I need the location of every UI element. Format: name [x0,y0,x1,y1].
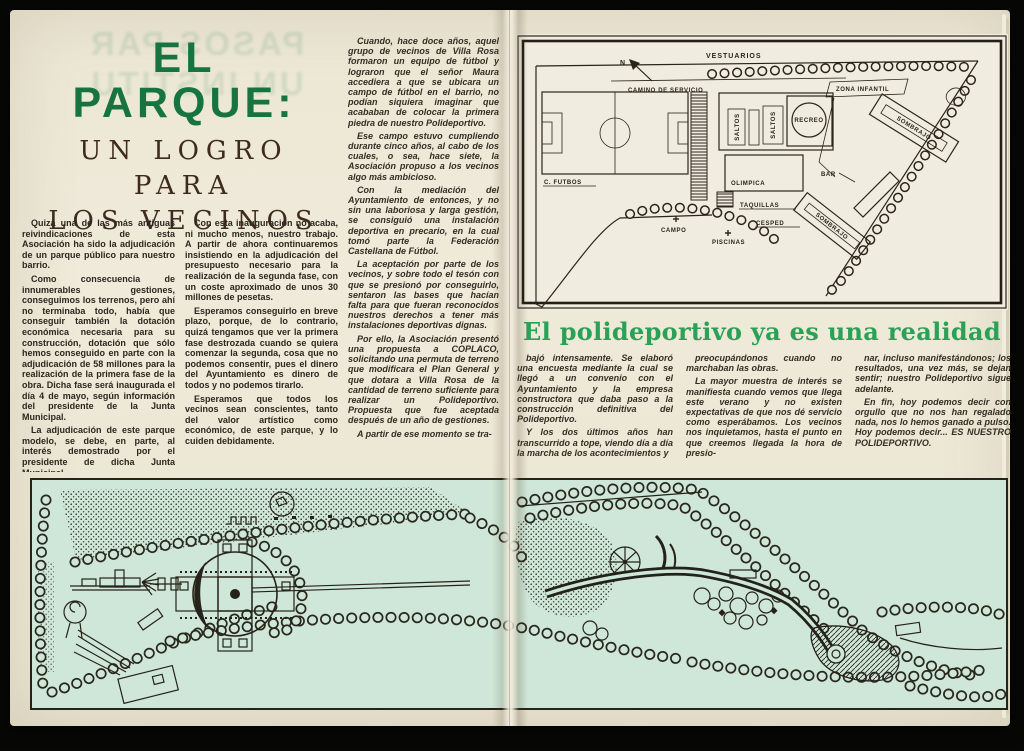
label-taquillas: TAQUILLAS [740,203,779,209]
label-campo: CAMPO [661,228,686,234]
title-green: EL PARQUE: [28,36,340,126]
pergola-comb [226,517,256,524]
paragraph: En fin, hoy podemos decir con orgullo qu… [855,397,1011,448]
paragraph: Quizá una de las más antiguas reivindica… [22,218,175,271]
left-article-column-1: Quizá una de las más antiguas reivindica… [22,218,175,472]
paragraph: nar, incluso manifestándonos; los result… [855,353,1011,394]
left-article-column-3: Cuando, hace doce años, aquel grupo de v… [348,36,499,474]
paragraph: Esperamos que todos los vecinos sean con… [185,394,338,447]
paragraph: Como consecuencia de innumerables gestio… [22,274,175,422]
paragraph: Cuando, hace doce años, aquel grupo de v… [348,36,499,128]
label-bar: BAR [821,172,836,178]
article-title-block: EL PARQUE: UN LOGRO PARA LOS VECINOS [28,36,340,239]
paragraph: bajó intensamente. Se elaboró una encues… [517,353,673,424]
right-article-column-1: bajó intensamente. Se elaboró una encues… [517,353,673,480]
label-recreo: RECREO [794,118,823,124]
left-article-column-2: Con esta inauguración no acaba, ni mucho… [185,218,338,472]
paragraph: La aceptación por parte de los vecinos, … [348,259,499,330]
polideportivo-headline: El polideportivo ya es una realidad [514,314,1010,350]
paragraph: Esperamos conseguirlo en breve plazo, po… [185,306,338,391]
label-olimpica: OLIMPICA [731,181,765,187]
right-article-column-3: nar, incluso manifestándonos; los result… [855,353,1011,480]
taquillas-block [717,192,733,207]
north-label: N [620,60,626,67]
label-zona-infantil: ZONA INFANTIL [836,87,889,93]
paragraph: Por ello, la Asociación presentó una pro… [348,334,499,426]
paragraph: preocupándonos cuando no marchaban las o… [686,353,842,373]
label-piscinas: PISCINAS [712,240,745,246]
stands-hatched [691,92,707,200]
right-article-column-2: preocupándonos cuando no marchaban las o… [686,353,842,480]
paragraph: La adjudicación de este parque modelo, s… [22,425,175,472]
paragraph: Con la mediación del Ayuntamiento de ent… [348,185,499,256]
park-plan-drawing [30,478,1008,710]
paragraph: Y los dos últimos años han transcurrido … [517,427,673,458]
label-saltos-b: SALTOS [771,111,777,138]
paragraph: Con esta inauguración no acaba, ni mucho… [185,218,338,303]
paragraph: La mayor muestra de interés se manifiest… [686,376,842,458]
label-campo-futbol: C. FUTBOS [544,180,582,186]
polideportivo-site-plan: N VESTUARIOS CAMINO DE SERVICIO ZONA INF… [516,34,1008,310]
label-vestuarios: VESTUARIOS [706,53,762,60]
label-saltos-a: SALTOS [735,113,741,140]
paragraph: Ese campo estuvo cumpliendo durante cinc… [348,131,499,182]
label-cesped: CESPED [756,221,784,227]
paragraph: A partir de ese momento se tra- [348,429,499,439]
scanned-magazine-spread: PASOS PAR UN INSTITU EL PARQUE: UN LOGRO… [0,0,1024,751]
